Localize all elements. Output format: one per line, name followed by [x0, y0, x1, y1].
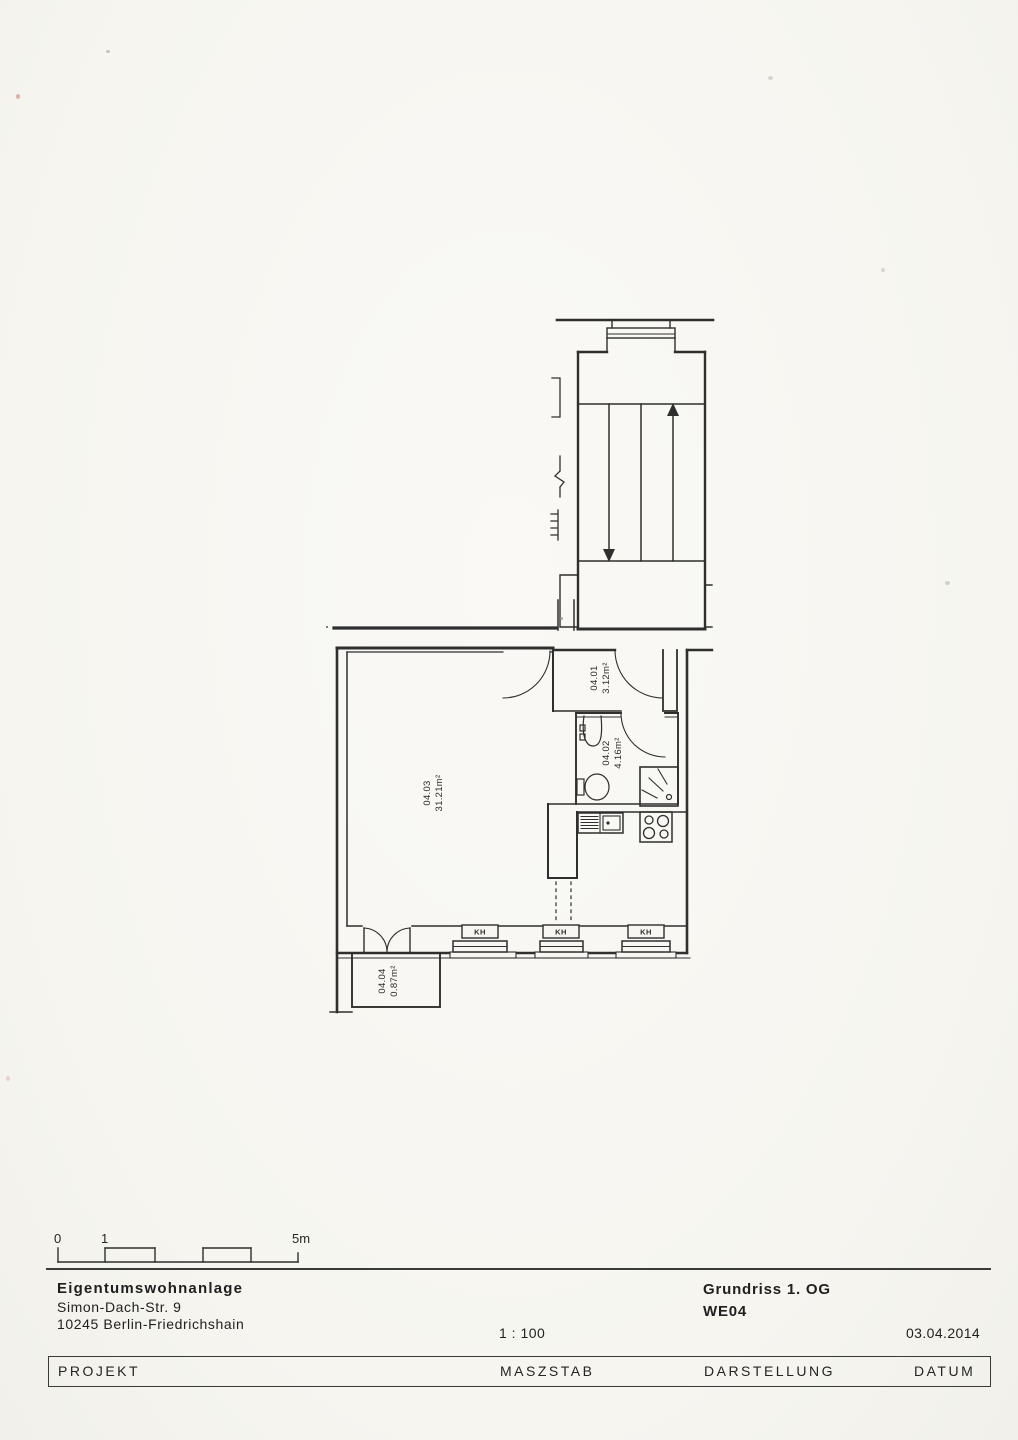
scale-value: 1 : 100	[499, 1325, 545, 1341]
window-1: KH	[450, 925, 516, 958]
project-city: 10245 Berlin-Friedrichshain	[57, 1316, 244, 1332]
door-arc-room-0403	[503, 651, 550, 698]
date-value: 03.04.2014	[906, 1325, 980, 1341]
window-3: KH	[616, 925, 676, 958]
label-datum: DATUM	[914, 1363, 975, 1379]
shower-symbol	[640, 767, 678, 806]
room-label: 04.01 3.12m²	[589, 662, 612, 693]
scan-speck	[881, 268, 885, 272]
scan-speck	[6, 1076, 10, 1081]
room-label: 04.02 4.16m²	[601, 737, 624, 768]
scan-speck	[560, 617, 563, 620]
scale-tick-5m: 5m	[292, 1231, 310, 1246]
svg-text:4.16m²: 4.16m²	[613, 737, 624, 768]
french-door-symbol	[364, 928, 410, 952]
washbasin-symbol	[580, 716, 602, 746]
scanned-floor-plan-page: KH KH KH	[0, 0, 1018, 1440]
bathroom-fixtures	[577, 716, 678, 806]
corridor-wall	[326, 626, 556, 628]
svg-text:31.21m²: 31.21m²	[434, 775, 445, 812]
bathroom-door-arc	[621, 713, 665, 757]
toilet-symbol	[577, 774, 609, 800]
scan-speck	[768, 76, 773, 80]
drawing-title: Grundriss 1. OG	[703, 1281, 831, 1298]
room-label: 04.04 0.87m²	[377, 965, 400, 996]
svg-text:04.04: 04.04	[377, 968, 388, 993]
windows: KH KH KH	[450, 925, 676, 958]
room-label: 04.03 31.21m²	[422, 775, 445, 812]
kitchen-sink-symbol	[578, 813, 623, 833]
adjacent-wall-opening-symbols	[551, 378, 574, 630]
kitchen-fixtures	[578, 812, 672, 842]
project-name: Eigentumswohnanlage	[57, 1280, 243, 1297]
window-2: KH	[535, 925, 588, 958]
stair-landing-step	[607, 328, 675, 338]
window-marker-label: KH	[640, 928, 652, 937]
stairwell	[557, 320, 713, 629]
stove-symbol	[640, 812, 672, 842]
scale-tick-1: 1	[101, 1231, 108, 1246]
arrow-down-icon	[603, 549, 615, 562]
title-block-divider	[46, 1268, 991, 1270]
scan-speck	[106, 50, 110, 53]
scan-speck	[16, 94, 20, 99]
stair-direction-arrows	[603, 403, 679, 562]
label-maszstab: MASZSTAB	[500, 1363, 594, 1379]
opening-above-dashed-lines	[556, 882, 571, 924]
project-street: Simon-Dach-Str. 9	[57, 1299, 182, 1315]
label-projekt: PROJEKT	[58, 1363, 140, 1379]
floor-plan-drawing: KH KH KH	[0, 0, 1018, 1440]
label-darstellung: DARSTELLUNG	[704, 1363, 835, 1379]
svg-text:3.12m²: 3.12m²	[601, 662, 612, 693]
svg-text:04.01: 04.01	[589, 665, 600, 690]
window-marker-label: KH	[555, 928, 567, 937]
scale-tick-0: 0	[54, 1231, 61, 1246]
scale-bar: 0 1 5m	[54, 1231, 310, 1262]
window-marker-label: KH	[474, 928, 486, 937]
svg-text:0.87m²: 0.87m²	[389, 965, 400, 996]
svg-text:04.03: 04.03	[422, 780, 433, 805]
scan-speck	[945, 581, 950, 585]
drawing-unit: WE04	[703, 1303, 747, 1320]
svg-text:04.02: 04.02	[601, 740, 612, 765]
entrance-door-arc	[615, 650, 663, 698]
arrow-up-icon	[667, 403, 679, 416]
